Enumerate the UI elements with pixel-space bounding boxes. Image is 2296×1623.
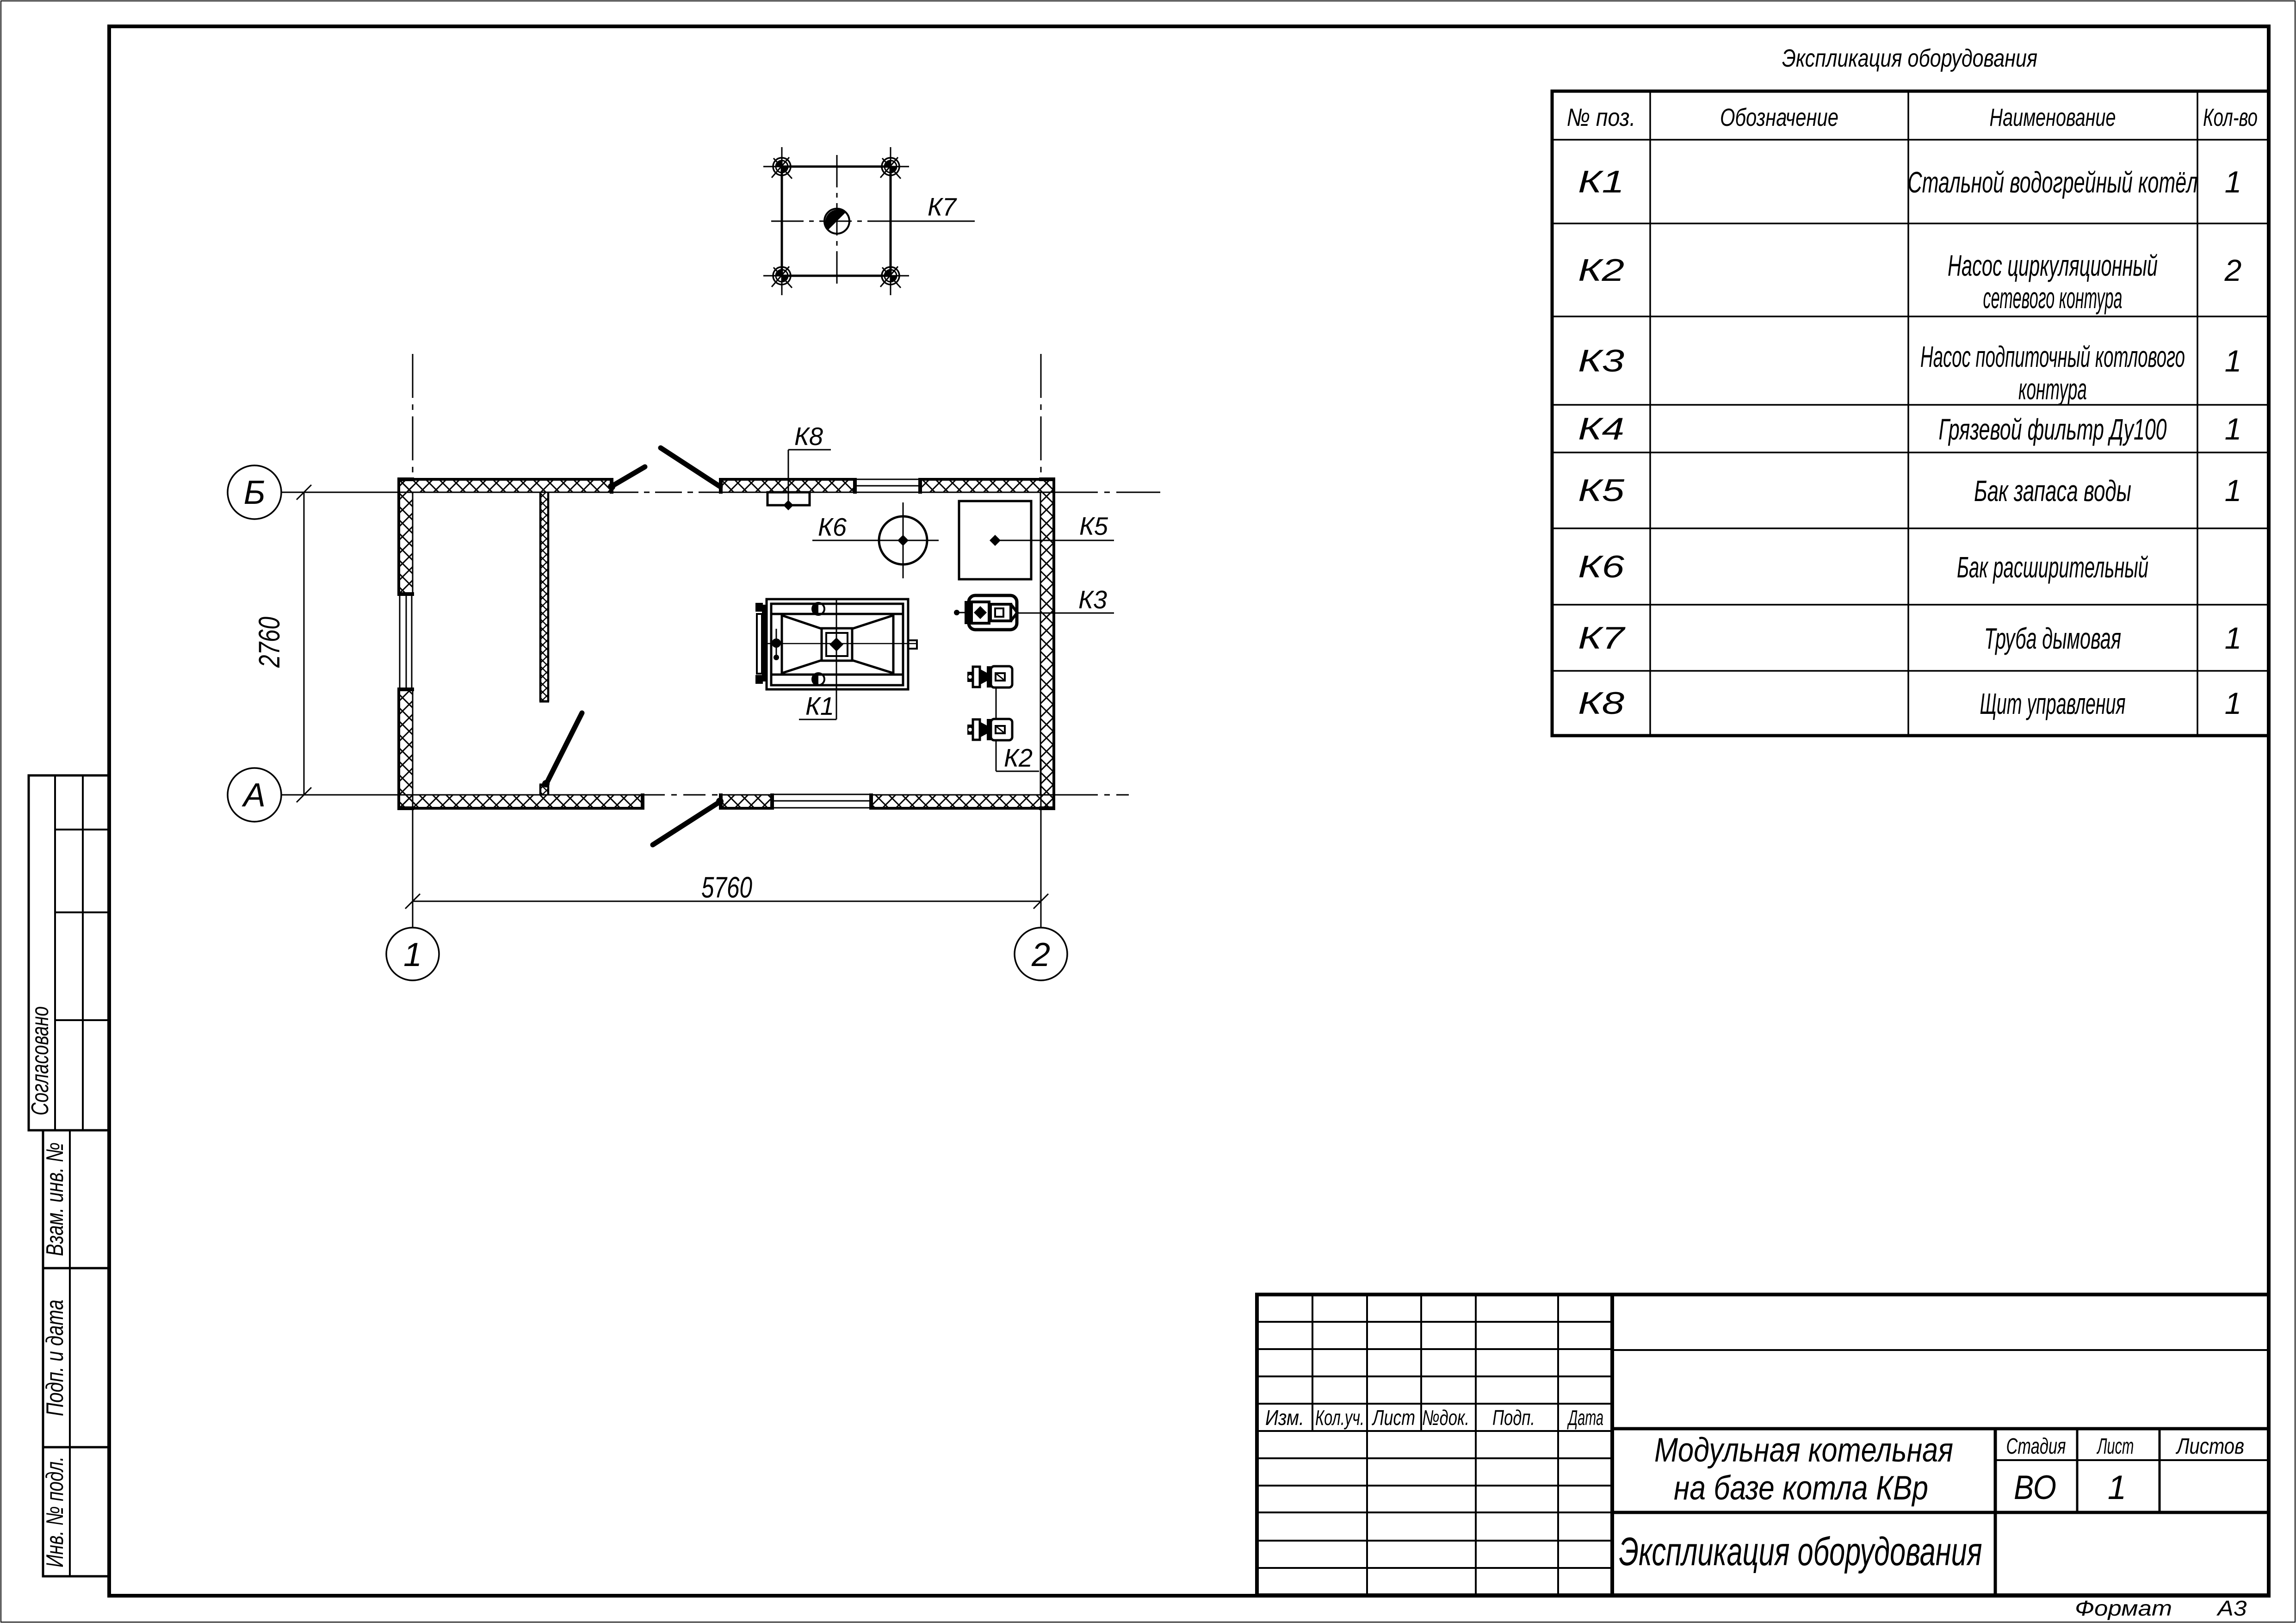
svg-text:К5: К5 [1578,473,1624,508]
svg-text:Стальной водогрейный котёл: Стальной водогрейный котёл [1908,166,2198,199]
svg-text:К5: К5 [1079,512,1108,540]
svg-text:Согласовано: Согласовано [27,1006,54,1115]
svg-text:К8: К8 [794,422,823,451]
svg-text:Лист: Лист [2097,1434,2134,1459]
svg-text:Насос подпиточный котлового: Насос подпиточный котлового [1920,340,2185,373]
svg-text:К2: К2 [1004,743,1033,772]
svg-text:1: 1 [403,936,422,973]
svg-text:Лист: Лист [1372,1406,1415,1430]
svg-text:Модульная котельная: Модульная котельная [1654,1431,1953,1469]
svg-text:Листов: Листов [2175,1434,2244,1459]
svg-text:2760: 2760 [253,617,286,668]
svg-text:К6: К6 [1578,549,1624,584]
svg-text:Б: Б [244,474,266,511]
svg-text:Бак запаса воды: Бак запаса воды [1974,474,2131,508]
svg-text:А: А [241,777,266,814]
svg-text:К1: К1 [1578,164,1624,199]
svg-text:5760: 5760 [701,871,752,904]
svg-text:2: 2 [1031,936,1050,973]
svg-text:1: 1 [2225,165,2242,199]
svg-text:Экспликация оборудования: Экспликация оборудования [1782,44,2037,72]
svg-text:Стадия: Стадия [2006,1434,2066,1459]
svg-text:К3: К3 [1578,343,1624,378]
svg-text:Дата: Дата [1567,1406,1603,1430]
svg-text:Труба дымовая: Труба дымовая [1984,622,2121,655]
svg-text:Грязевой фильтр Ду100: Грязевой фильтр Ду100 [1939,413,2167,446]
svg-text:Инв. № подл.: Инв. № подл. [42,1456,68,1567]
svg-text:1: 1 [2225,344,2242,378]
svg-text:2: 2 [2224,253,2242,287]
svg-text:К7: К7 [1578,620,1626,656]
svg-text:К3: К3 [1078,585,1107,614]
svg-text:Кол-во: Кол-во [2203,104,2258,131]
svg-text:Экспликация оборудования: Экспликация оборудования [1619,1530,1982,1574]
svg-text:№ поз.: № поз. [1567,104,1636,131]
svg-text:К2: К2 [1578,253,1624,288]
svg-text:1: 1 [2225,473,2242,508]
svg-text:Подп.: Подп. [1492,1406,1535,1430]
svg-text:Бак расширительный: Бак расширительный [1957,551,2148,584]
svg-text:К7: К7 [928,192,957,221]
svg-text:Наименование: Наименование [1990,104,2116,131]
svg-text:1: 1 [2108,1469,2127,1506]
svg-text:Щит управления: Щит управления [1980,687,2126,720]
svg-text:Формат: Формат [2075,1596,2172,1620]
svg-text:контура: контура [2018,372,2087,406]
svg-text:Изм.: Изм. [1265,1406,1304,1430]
svg-text:1: 1 [2225,686,2242,720]
svg-text:сетевого контура: сетевого контура [1983,281,2123,315]
svg-text:Кол.уч.: Кол.уч. [1315,1406,1364,1430]
svg-text:1: 1 [2225,621,2242,655]
svg-text:1: 1 [2225,412,2242,446]
svg-text:А3: А3 [2216,1596,2247,1620]
svg-text:К6: К6 [818,513,847,541]
svg-text:Подп. и дата: Подп. и дата [42,1300,68,1416]
svg-text:ВО: ВО [2014,1469,2056,1506]
svg-text:Взам. инв. №: Взам. инв. № [42,1142,68,1256]
svg-text:Обозначение: Обозначение [1720,104,1838,131]
svg-text:К4: К4 [1578,411,1624,446]
svg-text:Насос циркуляционный: Насос циркуляционный [1948,249,2158,282]
svg-text:на базе котла КВр: на базе котла КВр [1674,1469,1928,1507]
svg-text:К1: К1 [805,692,834,720]
svg-text:№док.: №док. [1422,1406,1469,1430]
svg-text:К8: К8 [1578,686,1624,721]
